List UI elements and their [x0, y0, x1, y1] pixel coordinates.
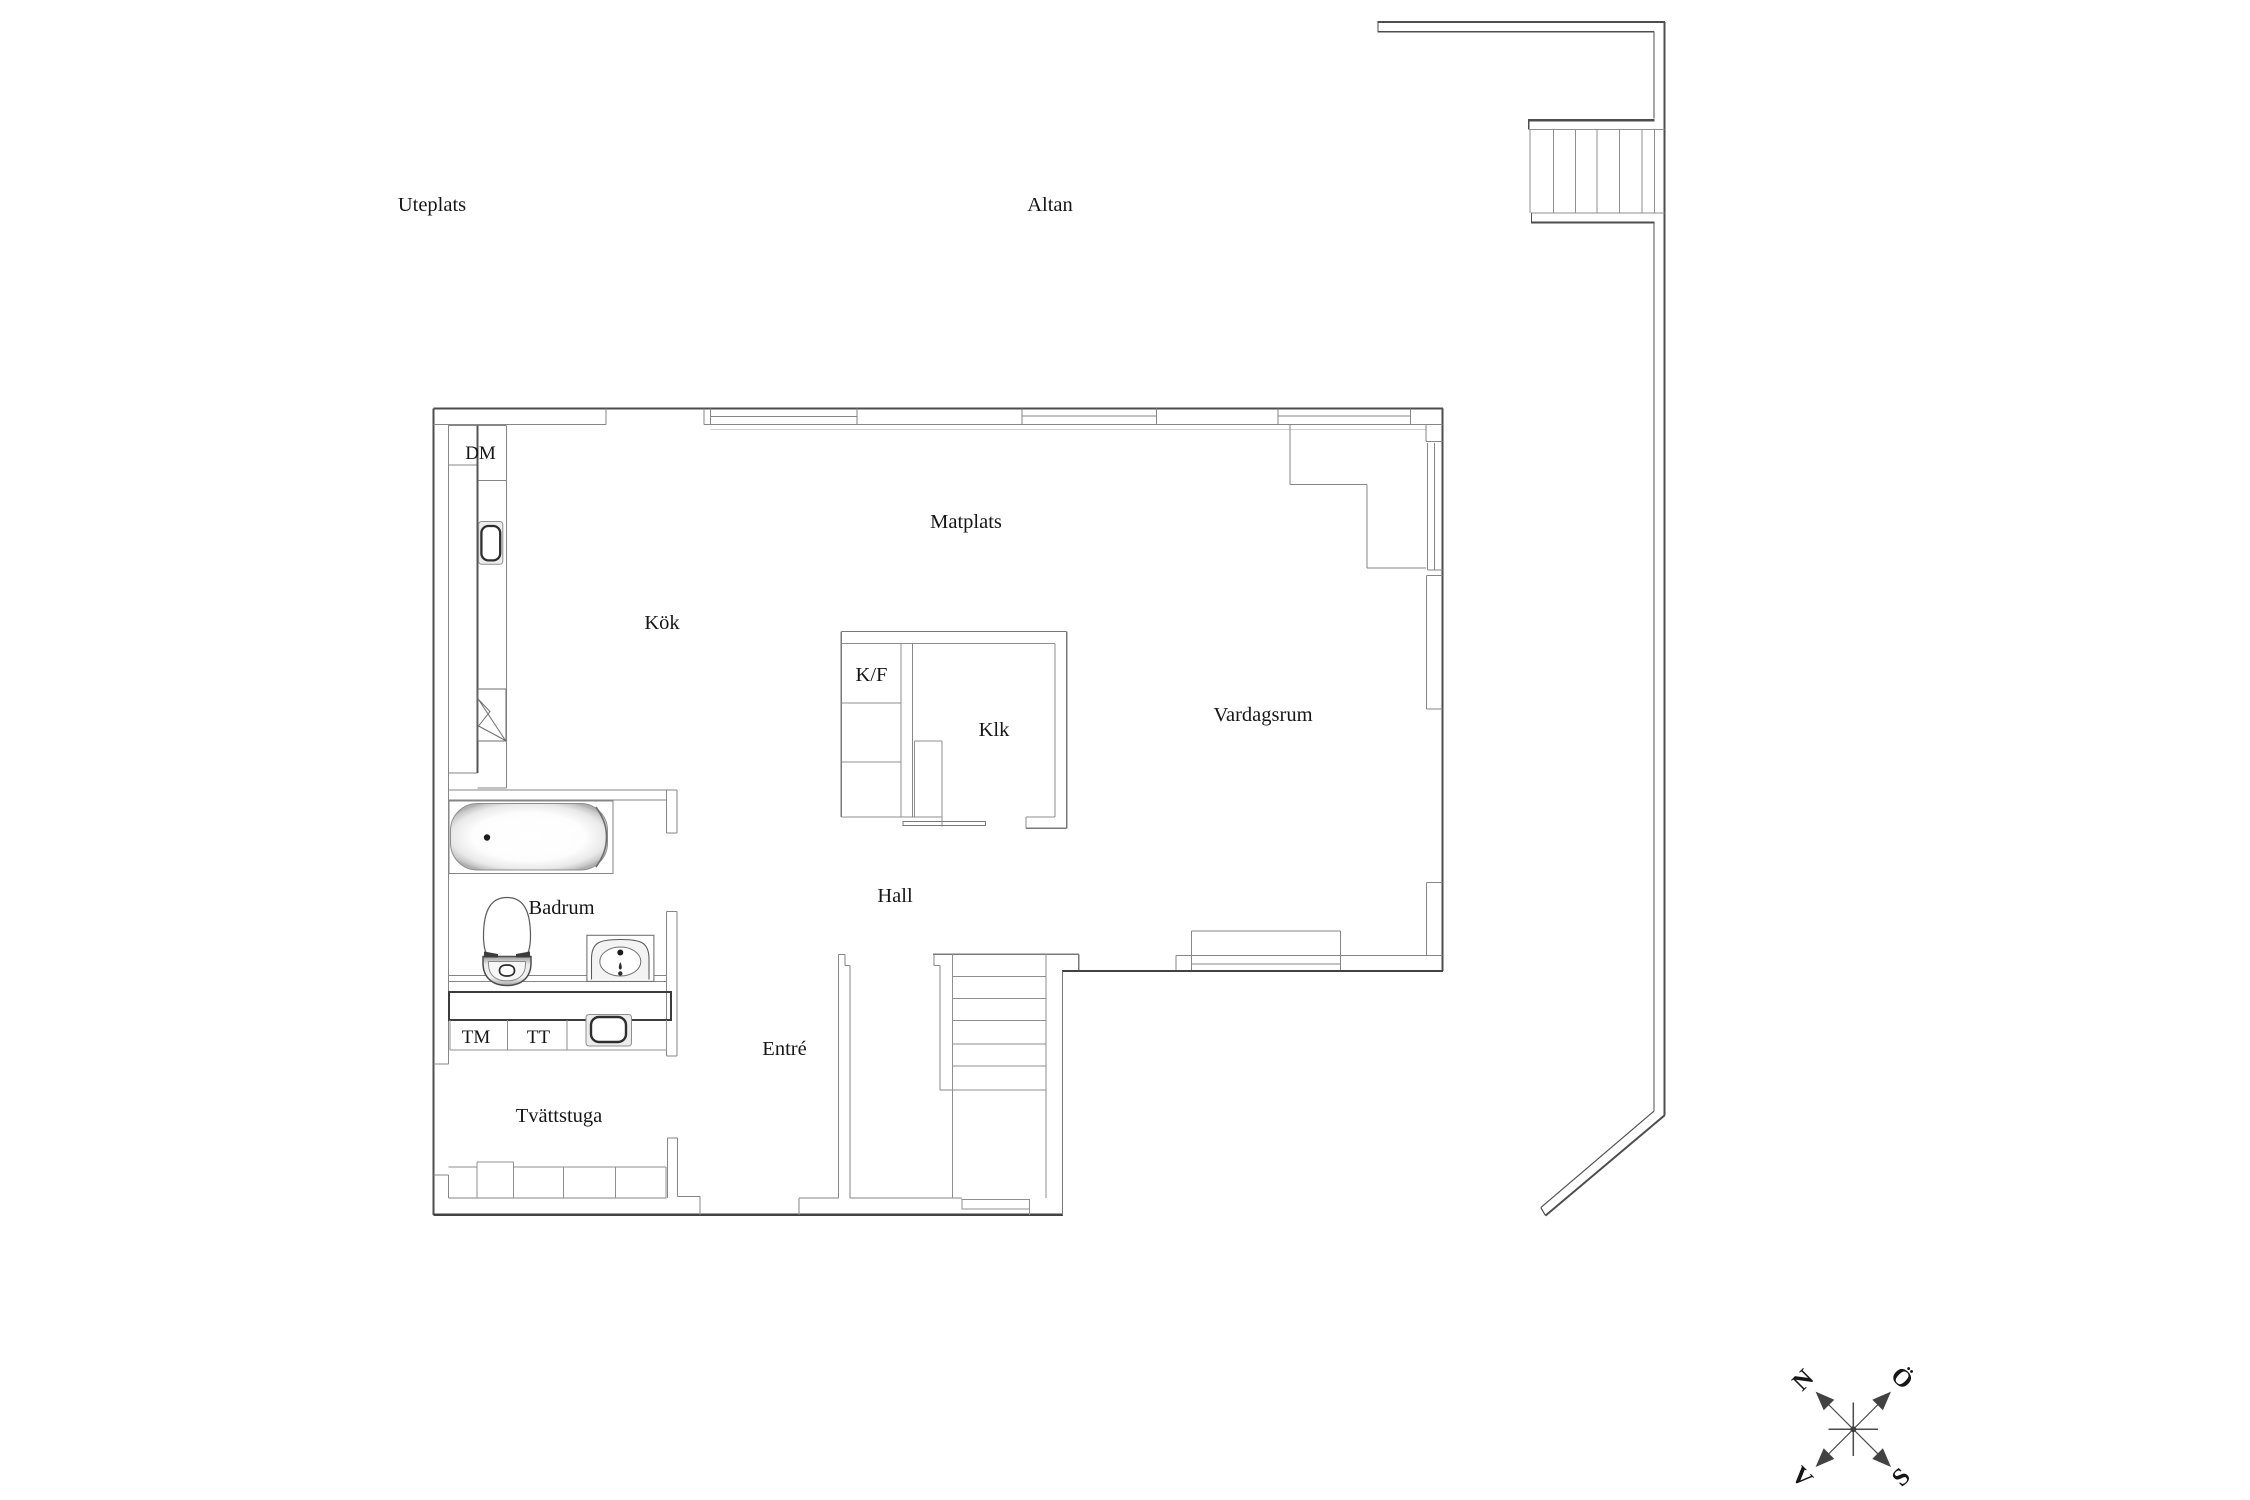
svg-text:DM: DM	[465, 443, 496, 464]
svg-text:Ö: Ö	[1885, 1362, 1918, 1395]
svg-text:Badrum: Badrum	[528, 897, 594, 919]
svg-text:TM: TM	[462, 1027, 491, 1048]
svg-text:Altan: Altan	[1027, 194, 1073, 216]
svg-text:Uteplats: Uteplats	[398, 194, 466, 216]
svg-text:Kök: Kök	[644, 612, 680, 634]
svg-text:Klk: Klk	[979, 719, 1011, 741]
svg-text:S: S	[1887, 1463, 1916, 1492]
svg-text:Matplats: Matplats	[930, 511, 1002, 533]
svg-text:Vardagsrum: Vardagsrum	[1213, 704, 1312, 726]
svg-text:K/F: K/F	[856, 664, 888, 686]
svg-text:Tvättstuga: Tvättstuga	[516, 1105, 603, 1127]
svg-text:Hall: Hall	[877, 885, 913, 907]
svg-text:N: N	[1787, 1364, 1819, 1396]
svg-text:TT: TT	[527, 1027, 551, 1048]
svg-text:V: V	[1786, 1461, 1818, 1493]
svg-text:Entré: Entré	[762, 1038, 806, 1060]
